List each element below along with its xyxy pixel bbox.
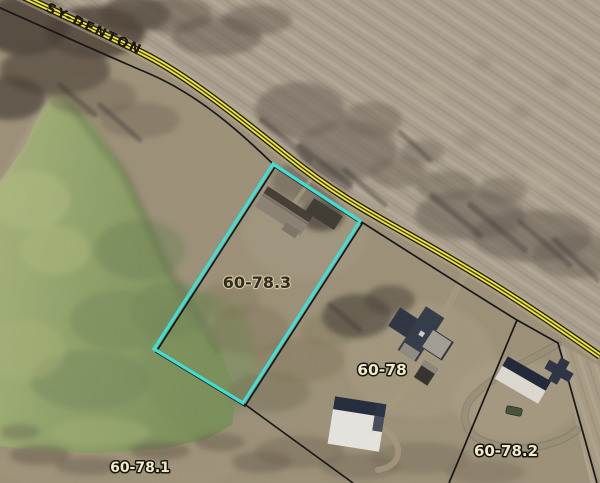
aerial-map-view[interactable]: SY-DENTON 60-78.3 60-78 60-78.1 60-78.2 <box>0 0 600 483</box>
